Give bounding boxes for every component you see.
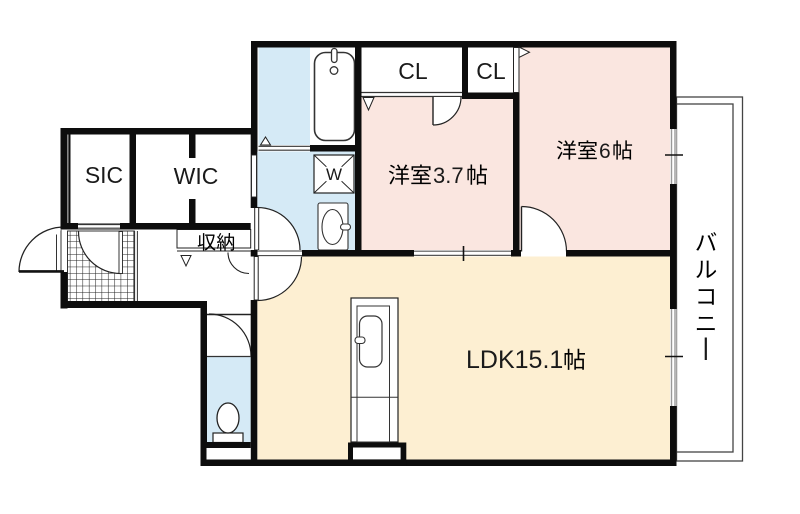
svg-text:WIC: WIC (174, 163, 219, 189)
svg-text:W: W (326, 165, 342, 184)
svg-text:CL: CL (476, 58, 506, 84)
svg-text:6: 6 (599, 140, 611, 163)
svg-text:3.7: 3.7 (433, 163, 464, 188)
svg-text:CL: CL (398, 58, 428, 84)
svg-text:SIC: SIC (85, 162, 123, 188)
svg-text:LDK15.1: LDK15.1 (466, 346, 563, 374)
